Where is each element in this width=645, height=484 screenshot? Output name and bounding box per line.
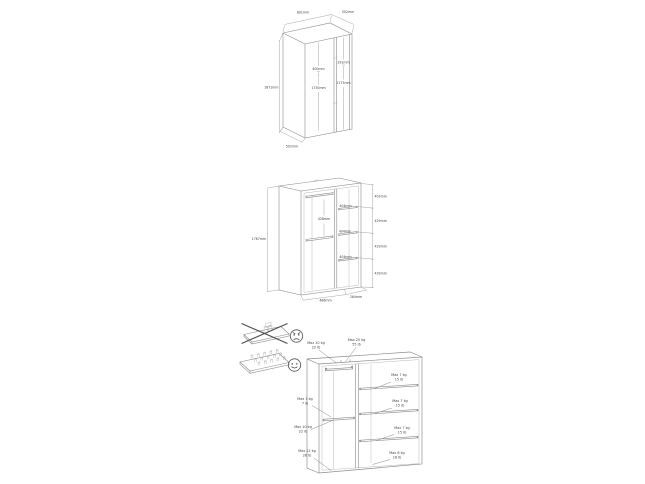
max-load-label-right-shelf-1: Max 7 kg 15 lb xyxy=(391,373,406,382)
dim-width-label: 801mm xyxy=(297,11,309,15)
svg-text:15 lb: 15 lb xyxy=(395,378,404,382)
max-load-label-rail: Max 10 kg 22 lb xyxy=(307,341,325,350)
assembly-diagram: 801mm 502mm 1871mm 400mm 1730mm 291mm 11… xyxy=(0,0,645,484)
assembly-diagram-page: 801mm 502mm 1871mm 400mm 1730mm 291mm 11… xyxy=(0,0,645,484)
max-load-view: Max 10 kg 22 lb Max 25 kg 55 lb Max 7 kg… xyxy=(240,322,422,473)
dim-shelf-2-label: 404mm xyxy=(339,229,351,233)
svg-text:26 lb: 26 lb xyxy=(303,454,312,458)
svg-text:Max 8 kg: Max 8 kg xyxy=(389,451,404,455)
interior-dimensions-view: 1767mm 403mm 429mm 429mm 439mm 428mm 404… xyxy=(252,178,387,303)
angry-face-icon xyxy=(290,330,302,342)
happy-face-icon xyxy=(288,359,300,371)
distributed-load-icon xyxy=(240,349,289,373)
svg-text:18 lb: 18 lb xyxy=(393,456,402,460)
dim-interior-base-depth-label: 264mm xyxy=(350,295,362,299)
concentrated-load-crossed-icon xyxy=(242,322,290,344)
dim-interior-height-label: 1767mm xyxy=(252,237,266,241)
dim-shelf-3-label: 404mm xyxy=(339,255,351,259)
dim-right-door-top-label: 291mm xyxy=(337,61,349,65)
svg-text:Max 10 kg: Max 10 kg xyxy=(294,425,312,429)
svg-text:55 lb: 55 lb xyxy=(352,343,361,347)
svg-text:15 lb: 15 lb xyxy=(396,404,405,408)
dim-depth-label: 502mm xyxy=(342,10,354,14)
dim-left-door-height-label: 1730mm xyxy=(311,86,325,90)
dim-height-label: 1871mm xyxy=(264,86,278,90)
max-load-label-top: Max 25 kg 55 lb xyxy=(348,338,366,347)
svg-text:22 lb: 22 lb xyxy=(312,345,321,349)
max-load-label-right-shelf-3: Max 7 kg 15 lb xyxy=(394,426,409,435)
max-load-label-right-bottom: Max 8 kg 18 lb xyxy=(389,451,404,460)
svg-text:Max 3 kg: Max 3 kg xyxy=(297,397,312,401)
svg-text:Max 7 kg: Max 7 kg xyxy=(391,373,406,377)
svg-text:Max 10 kg: Max 10 kg xyxy=(307,341,325,345)
svg-text:15 lb: 15 lb xyxy=(398,431,407,435)
dim-right-door-height-label: 1173mm xyxy=(336,81,350,85)
dim-rail-to-shelf-label: 428mm xyxy=(318,217,330,221)
svg-text:Max 7 kg: Max 7 kg xyxy=(392,399,407,403)
svg-text:7 lb: 7 lb xyxy=(302,402,308,406)
max-load-label-left-shelf: Max 10 kg 22 lb xyxy=(294,425,312,434)
svg-text:Max 25 kg: Max 25 kg xyxy=(348,338,366,342)
svg-text:Max 7 kg: Max 7 kg xyxy=(394,426,409,430)
dim-base-width-label: 486mm xyxy=(319,299,331,303)
dim-section-2-label: 429mm xyxy=(375,219,387,223)
max-load-label-right-shelf-2: Max 7 kg 15 lb xyxy=(392,399,407,408)
max-load-label-left-shelf-top: Max 3 kg 7 lb xyxy=(297,397,312,406)
dim-base-depth-label: 502mm xyxy=(286,145,298,149)
dim-left-door-width-label: 400mm xyxy=(312,67,324,71)
svg-text:22 lb: 22 lb xyxy=(299,430,308,434)
dim-section-1-label: 403mm xyxy=(375,195,387,199)
max-load-label-left-bottom: Max 12 kg 26 lb xyxy=(298,449,316,458)
exterior-dimensions-view: 801mm 502mm 1871mm 400mm 1730mm 291mm 11… xyxy=(264,10,354,148)
dim-section-4-label: 439mm xyxy=(375,272,387,276)
dim-shelf-1-label: 404mm xyxy=(339,204,351,208)
svg-text:Max 12 kg: Max 12 kg xyxy=(298,449,316,453)
dim-section-3-label: 429mm xyxy=(375,245,387,249)
